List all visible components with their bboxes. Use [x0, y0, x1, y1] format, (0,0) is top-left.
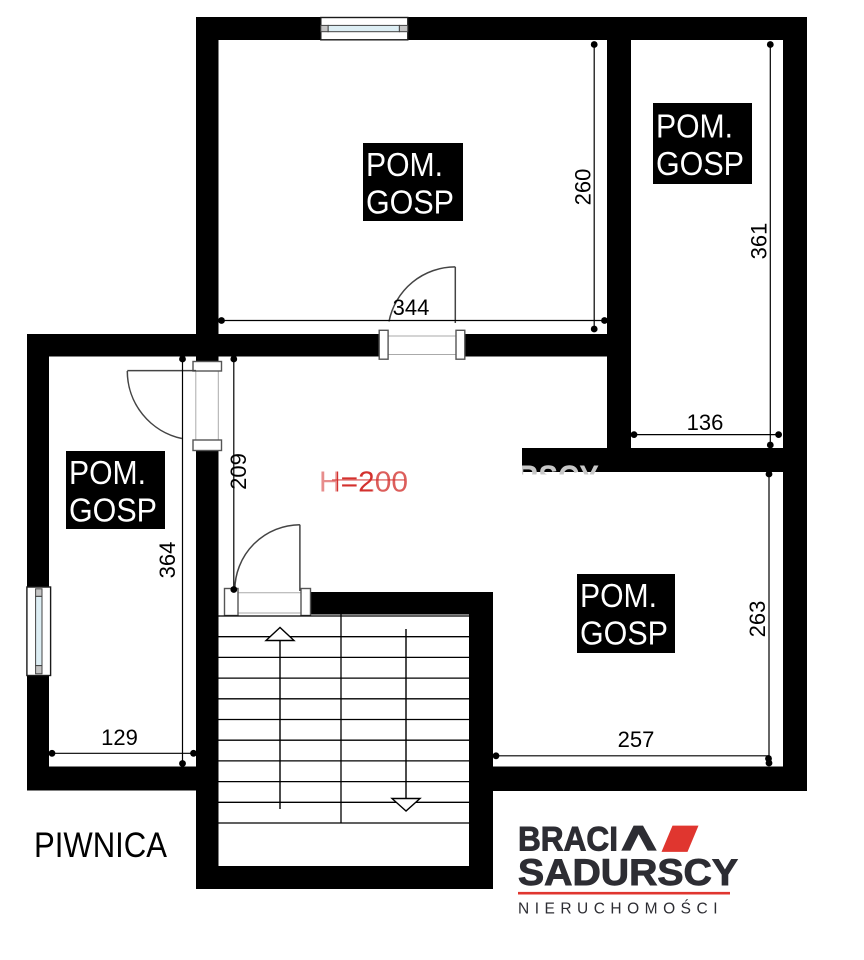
svg-text:RSCY: RSCY: [517, 459, 599, 497]
svg-text:361: 361: [747, 223, 772, 260]
svg-text:NIERUCHOMOŚCI: NIERUCHOMOŚCI: [518, 900, 725, 918]
svg-text:POM.: POM.: [656, 108, 733, 145]
svg-text:SADURSCY: SADURSCY: [518, 852, 738, 893]
svg-text:PIWNICA: PIWNICA: [34, 826, 168, 865]
svg-text:POM.: POM.: [69, 454, 146, 491]
svg-text:GOSP: GOSP: [656, 145, 744, 182]
svg-text:GOSP: GOSP: [366, 184, 454, 221]
svg-text:257: 257: [618, 727, 655, 752]
svg-text:GOSP: GOSP: [69, 492, 157, 529]
svg-text:263: 263: [745, 601, 770, 638]
svg-text:209: 209: [226, 453, 251, 490]
svg-text:GOSP: GOSP: [580, 615, 668, 652]
svg-text:POM.: POM.: [580, 577, 657, 614]
svg-text:364: 364: [155, 542, 180, 579]
svg-text:136: 136: [687, 410, 724, 435]
svg-text:POM.: POM.: [366, 146, 443, 183]
svg-text:129: 129: [101, 725, 138, 750]
svg-text:260: 260: [571, 169, 596, 206]
svg-text:344: 344: [393, 295, 430, 320]
